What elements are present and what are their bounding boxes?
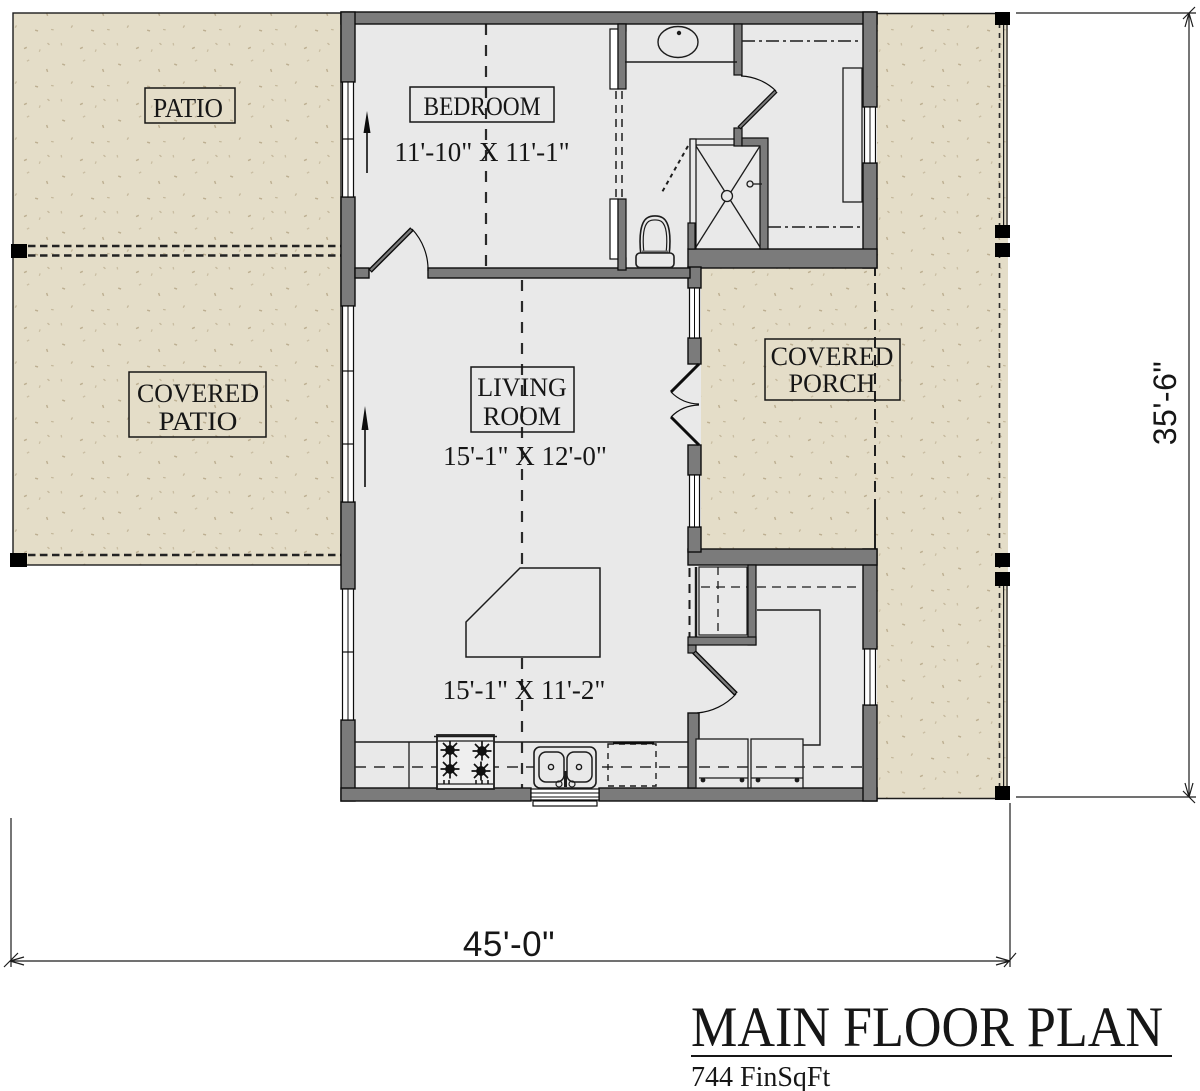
- svg-text:COVERED: COVERED: [771, 342, 894, 371]
- svg-text:PATIO: PATIO: [153, 93, 223, 123]
- svg-text:35'-6": 35'-6": [1147, 361, 1183, 446]
- svg-text:11'-10" X 11'-1": 11'-10" X 11'-1": [394, 137, 569, 167]
- svg-text:PATIO: PATIO: [159, 407, 238, 436]
- svg-text:MAIN FLOOR PLAN: MAIN FLOOR PLAN: [691, 996, 1163, 1059]
- svg-text:LIVING: LIVING: [477, 373, 567, 402]
- svg-text:45'-0": 45'-0": [463, 925, 555, 964]
- svg-text:COVERED: COVERED: [137, 379, 259, 408]
- svg-text:PORCH: PORCH: [789, 369, 876, 398]
- svg-text:15'-1" X 12'-0": 15'-1" X 12'-0": [443, 441, 607, 471]
- svg-text:BEDROOM: BEDROOM: [424, 92, 541, 121]
- svg-text:ROOM: ROOM: [483, 402, 561, 431]
- svg-text:15'-1" X 11'-2": 15'-1" X 11'-2": [443, 675, 606, 705]
- svg-text:744 FinSqFt: 744 FinSqFt: [691, 1062, 830, 1091]
